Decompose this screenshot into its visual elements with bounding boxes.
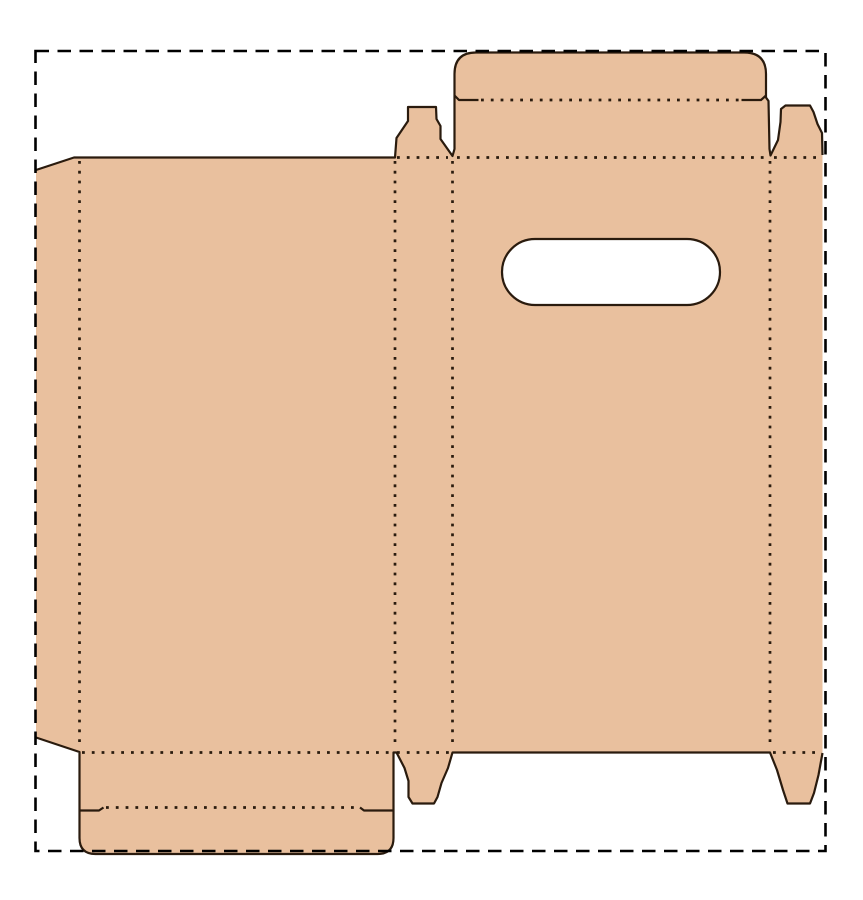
dieline-canvas [0,0,863,900]
carton-blank-silhouette [36,53,823,855]
dieline-page [0,0,863,900]
handle-cutout [502,239,720,305]
